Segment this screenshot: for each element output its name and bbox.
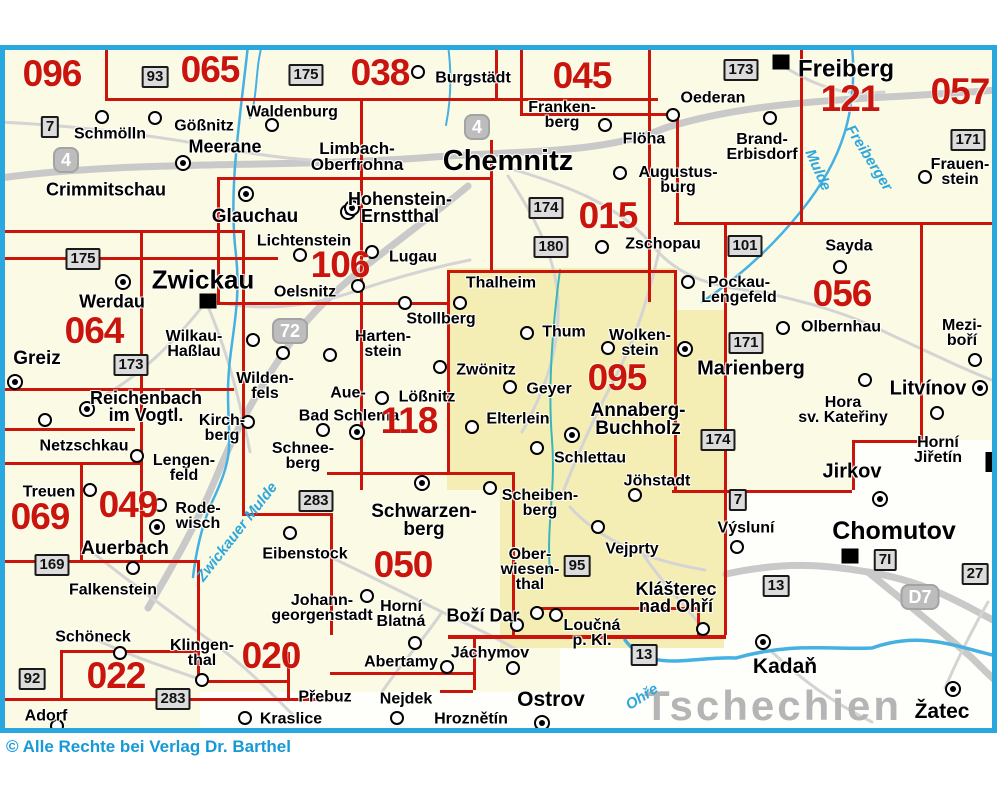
town-dot-marker	[7, 374, 23, 390]
town-label: Schwarzen-berg	[371, 503, 477, 539]
sheet-boundary-line	[447, 270, 450, 473]
town-dot-marker	[677, 341, 693, 357]
town-label: Werdau	[79, 293, 145, 310]
sheet-number: 020	[242, 635, 301, 677]
town-circle-marker	[408, 636, 422, 650]
sheet-number: 096	[23, 53, 82, 95]
town-dot-marker	[945, 681, 961, 697]
town-circle-marker	[595, 240, 609, 254]
town-circle-marker	[833, 260, 847, 274]
town-circle-marker	[126, 561, 140, 575]
sheet-boundary-line	[992, 222, 995, 462]
town-label: Litvínov	[890, 380, 967, 399]
town-label: Flöha	[623, 131, 666, 146]
city-square-marker	[842, 549, 859, 564]
town-label: HorníBlatná	[377, 599, 426, 629]
town-label: Chomutov	[832, 520, 956, 544]
map-clip: 7931751731714417418010117572173171174716…	[0, 45, 997, 733]
town-dot-marker	[534, 715, 550, 731]
town-circle-marker	[440, 660, 454, 674]
sheet-boundary-line	[674, 270, 677, 490]
town-circle-marker	[283, 526, 297, 540]
sheet-boundary-line	[0, 462, 142, 465]
town-label: Augustus-burg	[638, 165, 717, 195]
town-circle-marker	[390, 711, 404, 725]
road-number-badge: 13	[631, 644, 658, 666]
road-number-badge: 175	[288, 64, 323, 86]
sheet-boundary-line	[674, 222, 995, 225]
town-label: Scheiben-berg	[502, 488, 578, 518]
town-label: Přebuz	[298, 689, 351, 704]
sheet-boundary-line	[447, 270, 676, 273]
sheet-number: 038	[351, 52, 410, 94]
road-number-badge: 95	[564, 555, 591, 577]
town-label: Klingen-thal	[170, 638, 234, 668]
town-label: Klášterecnad Ohří	[635, 581, 716, 615]
town-label: Oederan	[681, 90, 746, 105]
town-circle-marker	[666, 108, 680, 122]
town-circle-marker	[238, 711, 252, 725]
sheet-number: 056	[813, 273, 872, 315]
sheet-boundary-line	[0, 230, 242, 233]
town-label: Waldenburg	[246, 104, 338, 119]
sheet-number: 064	[65, 310, 124, 352]
town-label: Falkenstein	[69, 582, 157, 597]
town-label: Harten-stein	[355, 329, 411, 359]
motorway-badge: 4	[464, 114, 490, 140]
town-circle-marker	[316, 423, 330, 437]
map-world: 7931751731714417418010117572173171174716…	[0, 45, 997, 733]
town-label: Loučnáp. Kl.	[564, 618, 621, 648]
sheet-boundary-line	[920, 222, 923, 440]
town-circle-marker	[453, 296, 467, 310]
town-circle-marker	[95, 110, 109, 124]
town-label: Elterlein	[486, 411, 549, 426]
town-label: Auerbach	[81, 540, 169, 558]
town-label: Jirkov	[823, 463, 882, 482]
road-number-badge: 92	[19, 668, 46, 690]
town-label: Wilkau-Haßlau	[166, 329, 223, 359]
town-circle-marker	[465, 420, 479, 434]
town-label: Nejdek	[380, 691, 432, 706]
town-label: Žatec	[915, 702, 970, 722]
road-number-badge: 171	[950, 129, 985, 151]
town-circle-marker	[858, 373, 872, 387]
town-label: Horasv. Kateřiny	[798, 395, 888, 425]
road-number-badge: 175	[65, 248, 100, 270]
town-circle-marker	[130, 449, 144, 463]
sheet-number: 065	[181, 49, 240, 91]
town-circle-marker	[591, 520, 605, 534]
town-circle-marker	[148, 111, 162, 125]
town-label: Pockau-Lengefeld	[701, 275, 777, 305]
town-circle-marker	[246, 333, 260, 347]
sheet-number: 069	[11, 496, 70, 538]
sheet-boundary-line	[217, 302, 450, 305]
town-label: Sayda	[825, 238, 872, 253]
town-label: Eibenstock	[262, 546, 347, 561]
sheet-number: 121	[821, 78, 880, 120]
town-label: Thum	[542, 324, 586, 339]
sheet-boundary-line	[852, 440, 922, 443]
road-number-badge: 7I	[874, 549, 897, 571]
road-number-badge: 174	[528, 197, 563, 219]
town-label: Jöhstadt	[624, 473, 691, 488]
sheet-number: 095	[588, 357, 647, 399]
town-label: Zwickau	[152, 268, 255, 293]
town-circle-marker	[38, 413, 52, 427]
town-circle-marker	[276, 346, 290, 360]
town-circle-marker	[506, 661, 520, 675]
town-label: Meerane	[188, 138, 261, 155]
town-label: Schlettau	[554, 450, 626, 465]
sheet-boundary-line	[197, 680, 288, 683]
road-number-badge: 101	[727, 235, 762, 257]
town-label: Adorf	[25, 708, 68, 723]
town-label: Ober-wiesen-thal	[501, 547, 560, 593]
town-label: Netzschkau	[40, 438, 129, 453]
town-dot-marker	[564, 427, 580, 443]
town-circle-marker	[398, 296, 412, 310]
town-circle-marker	[195, 673, 209, 687]
town-circle-marker	[530, 441, 544, 455]
town-label: Brand-Erbisdorf	[726, 132, 797, 162]
town-label: Wolken-stein	[609, 328, 671, 358]
town-circle-marker	[549, 608, 563, 622]
sheet-boundary-line	[217, 177, 492, 180]
town-label: Frauen-stein	[931, 157, 990, 187]
town-label: Lugau	[389, 249, 437, 264]
town-label: Kraslice	[260, 711, 322, 726]
town-dot-marker	[755, 634, 771, 650]
town-circle-marker	[503, 380, 517, 394]
country-label: Tschechien	[644, 682, 902, 730]
road-number-badge: 13	[763, 575, 790, 597]
sheet-number: 015	[579, 195, 638, 237]
motorway-badge: 4	[53, 147, 79, 173]
town-label: Limbach-Oberfrohna	[311, 141, 404, 173]
road-number-badge: 171	[728, 332, 763, 354]
sheet-number: 049	[99, 484, 158, 526]
town-label: Franken-berg	[528, 100, 596, 130]
town-label: Hroznětín	[434, 711, 508, 726]
sheet-boundary-line	[0, 560, 198, 563]
town-label: Zschopau	[625, 236, 701, 251]
sheet-boundary-line	[0, 257, 278, 260]
town-label: Kirch-berg	[199, 413, 245, 443]
road-number-badge: 7	[41, 116, 59, 138]
town-label: Aue-	[330, 385, 366, 400]
town-dot-marker	[414, 475, 430, 491]
town-label: Oelsnitz	[274, 284, 336, 299]
town-label: Wilden-fels	[236, 371, 294, 401]
town-circle-marker	[681, 275, 695, 289]
road-number-badge: 169	[34, 554, 69, 576]
sheet-number: 050	[374, 544, 433, 586]
sheet-number: 022	[87, 655, 146, 697]
copyright-text: © Alle Rechte bei Verlag Dr. Barthel	[6, 737, 291, 757]
town-label: Schmölln	[74, 126, 146, 141]
town-label: Chemnitz	[443, 148, 574, 176]
town-circle-marker	[483, 481, 497, 495]
town-circle-marker	[530, 606, 544, 620]
town-label: Vejprty	[605, 541, 658, 556]
town-label: Thalheim	[466, 275, 536, 290]
town-dot-marker	[972, 380, 988, 396]
town-circle-marker	[598, 118, 612, 132]
sheet-boundary-line	[105, 45, 108, 98]
town-circle-marker	[293, 248, 307, 262]
road-number-badge: 283	[298, 490, 333, 512]
city-square-marker	[986, 452, 995, 472]
motorway-badge: 72	[272, 318, 308, 344]
road-number-badge: 173	[113, 354, 148, 376]
town-circle-marker	[520, 326, 534, 340]
town-label: Reichenbachim Vogtl.	[90, 390, 202, 424]
town-dot-marker	[238, 186, 254, 202]
town-circle-marker	[696, 622, 710, 636]
town-label: Výsluní	[718, 520, 775, 535]
road-number-badge: 7	[729, 489, 747, 511]
sheet-boundary-line	[440, 690, 473, 693]
town-label: Boží Dar	[446, 607, 519, 624]
sheet-boundary-line	[60, 650, 63, 698]
town-label: Olbernhau	[801, 319, 881, 334]
town-circle-marker	[730, 540, 744, 554]
town-dot-marker	[175, 155, 191, 171]
town-circle-marker	[968, 353, 982, 367]
city-square-marker	[200, 294, 217, 309]
town-label: Annaberg-Buchholz	[591, 402, 686, 438]
road-number-badge: 173	[723, 59, 758, 81]
sheet-boundary-line	[330, 672, 473, 675]
city-square-marker	[773, 55, 790, 70]
town-label: Ostrov	[517, 690, 585, 710]
sheet-number: 106	[311, 244, 370, 286]
town-circle-marker	[411, 65, 425, 79]
town-circle-marker	[613, 166, 627, 180]
town-label: Glauchau	[212, 208, 299, 226]
town-dot-marker	[872, 491, 888, 507]
town-dot-marker	[349, 424, 365, 440]
town-label: Greiz	[13, 350, 61, 368]
town-circle-marker	[628, 488, 642, 502]
town-circle-marker	[83, 483, 97, 497]
road-number-badge: 180	[533, 236, 568, 258]
town-label: Kadaň	[753, 657, 817, 677]
town-label: Marienberg	[697, 360, 805, 379]
sheet-boundary-line	[0, 428, 135, 431]
town-label: Johann-georgenstadt	[271, 593, 372, 623]
town-circle-marker	[930, 406, 944, 420]
town-label: Zwönitz	[456, 362, 516, 377]
sheet-number: 057	[931, 71, 990, 113]
town-label: Hohenstein-Ernstthal	[348, 191, 452, 225]
sheet-boundary-line	[672, 490, 852, 493]
sheet-number: 045	[553, 55, 612, 97]
town-label: Mezi-boří	[942, 318, 982, 348]
town-circle-marker	[323, 348, 337, 362]
town-label: Stollberg	[406, 311, 475, 326]
town-label: Abertamy	[364, 654, 438, 669]
town-label: Geyer	[526, 381, 571, 396]
sheet-boundary-line	[520, 45, 523, 113]
road-number-badge: 27	[962, 563, 989, 585]
town-label: Burgstädt	[435, 70, 511, 85]
town-circle-marker	[776, 321, 790, 335]
town-label: Crimmitschau	[46, 181, 166, 198]
sheet-number: 118	[381, 400, 438, 442]
town-label: Gößnitz	[174, 118, 234, 133]
road-number-badge: 283	[155, 688, 190, 710]
road-number-badge: 174	[700, 429, 735, 451]
road-number-badge: 93	[142, 66, 169, 88]
town-circle-marker	[763, 111, 777, 125]
motorway-badge: D7	[900, 584, 939, 610]
sheet-boundary-line	[473, 635, 476, 690]
town-label: Rode-wisch	[175, 501, 220, 531]
town-label: Lengen-feld	[153, 453, 215, 483]
town-dot-marker	[115, 274, 131, 290]
town-label: Schöneck	[55, 629, 131, 644]
town-label: HorníJiřetín	[914, 435, 962, 465]
town-label: Schnee-berg	[272, 441, 334, 471]
town-circle-marker	[433, 360, 447, 374]
town-label: Jáchymov	[451, 645, 529, 660]
map-index-page: 7931751731714417418010117572173171174716…	[0, 0, 1000, 800]
